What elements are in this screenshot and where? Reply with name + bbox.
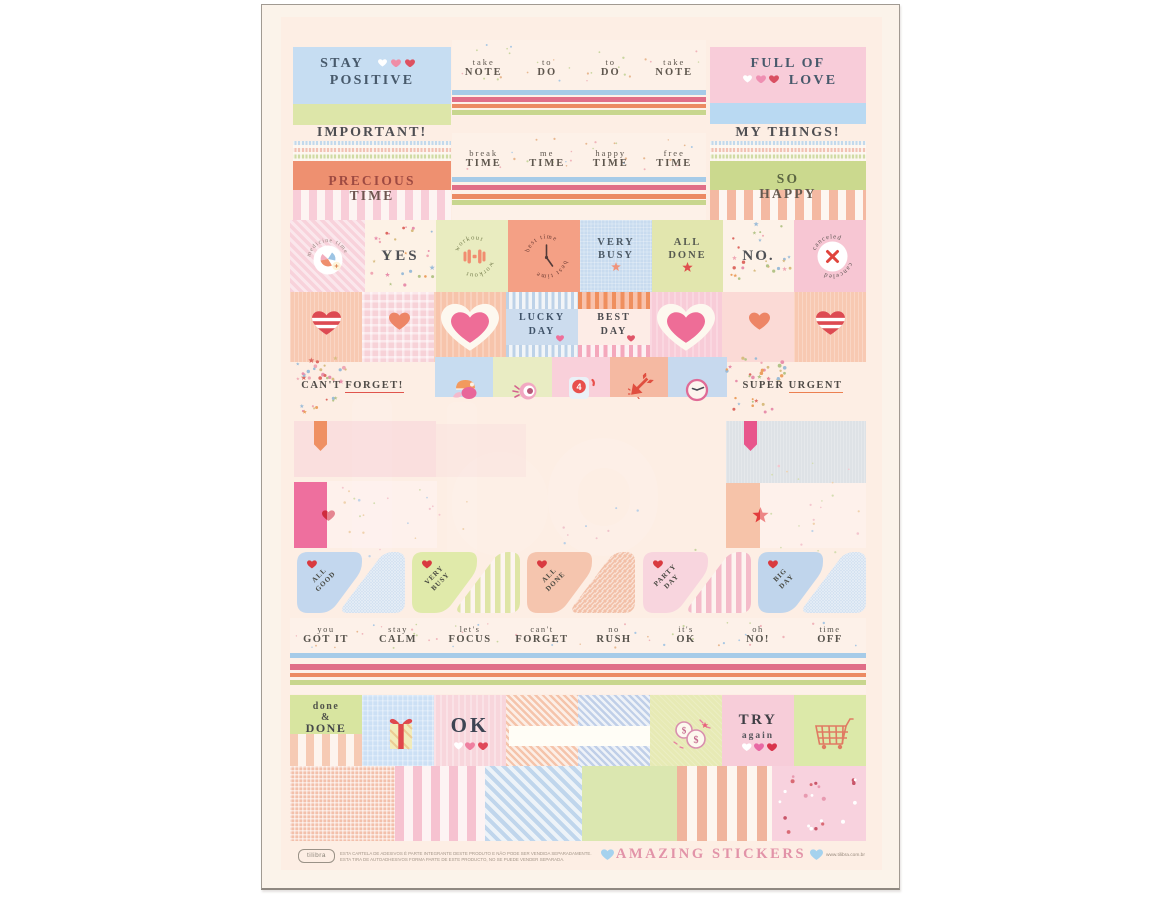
svg-text:$: $	[682, 726, 687, 736]
svg-text:4: 4	[576, 382, 581, 392]
svg-text:best time: best time	[534, 260, 569, 280]
svg-text:$: $	[694, 735, 699, 746]
svg-text:best time: best time	[524, 233, 559, 253]
